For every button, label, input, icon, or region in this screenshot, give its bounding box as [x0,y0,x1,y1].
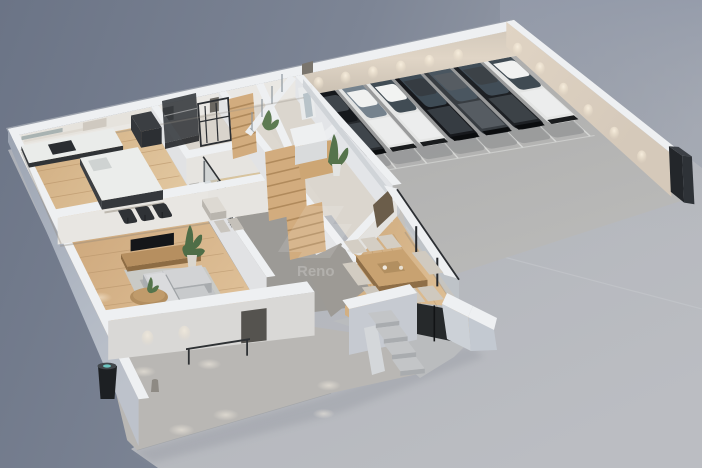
svg-text:Reno: Reno [297,263,335,280]
